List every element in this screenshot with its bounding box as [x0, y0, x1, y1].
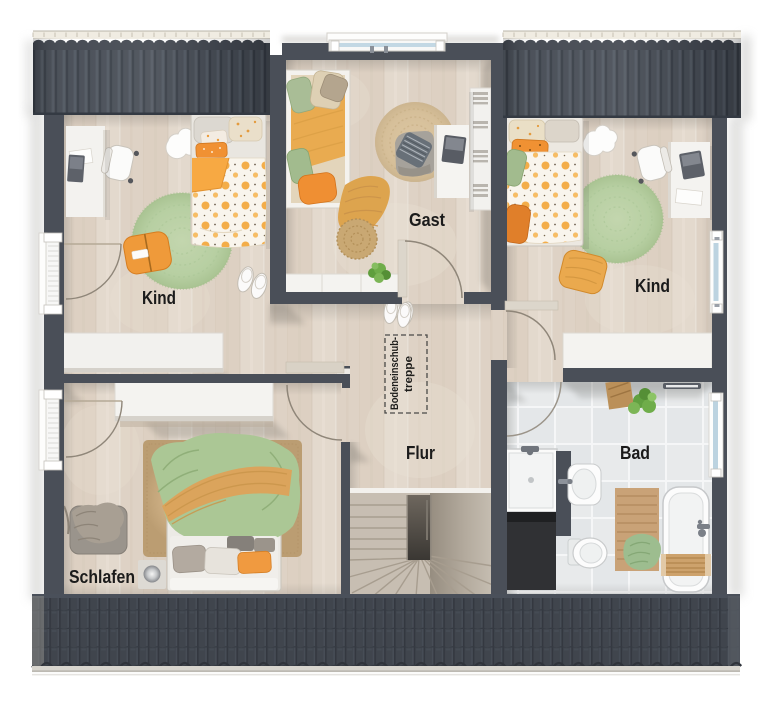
svg-text:Kind: Kind [142, 287, 176, 308]
svg-text:Bodeneinschub-: Bodeneinschub- [389, 337, 401, 410]
svg-text:treppe: treppe [403, 356, 415, 392]
svg-text:Bad: Bad [620, 442, 650, 463]
svg-text:Kind: Kind [635, 275, 670, 296]
svg-text:Gast: Gast [409, 209, 445, 230]
svg-text:Schlafen: Schlafen [69, 566, 135, 587]
svg-text:Flur: Flur [406, 442, 435, 463]
